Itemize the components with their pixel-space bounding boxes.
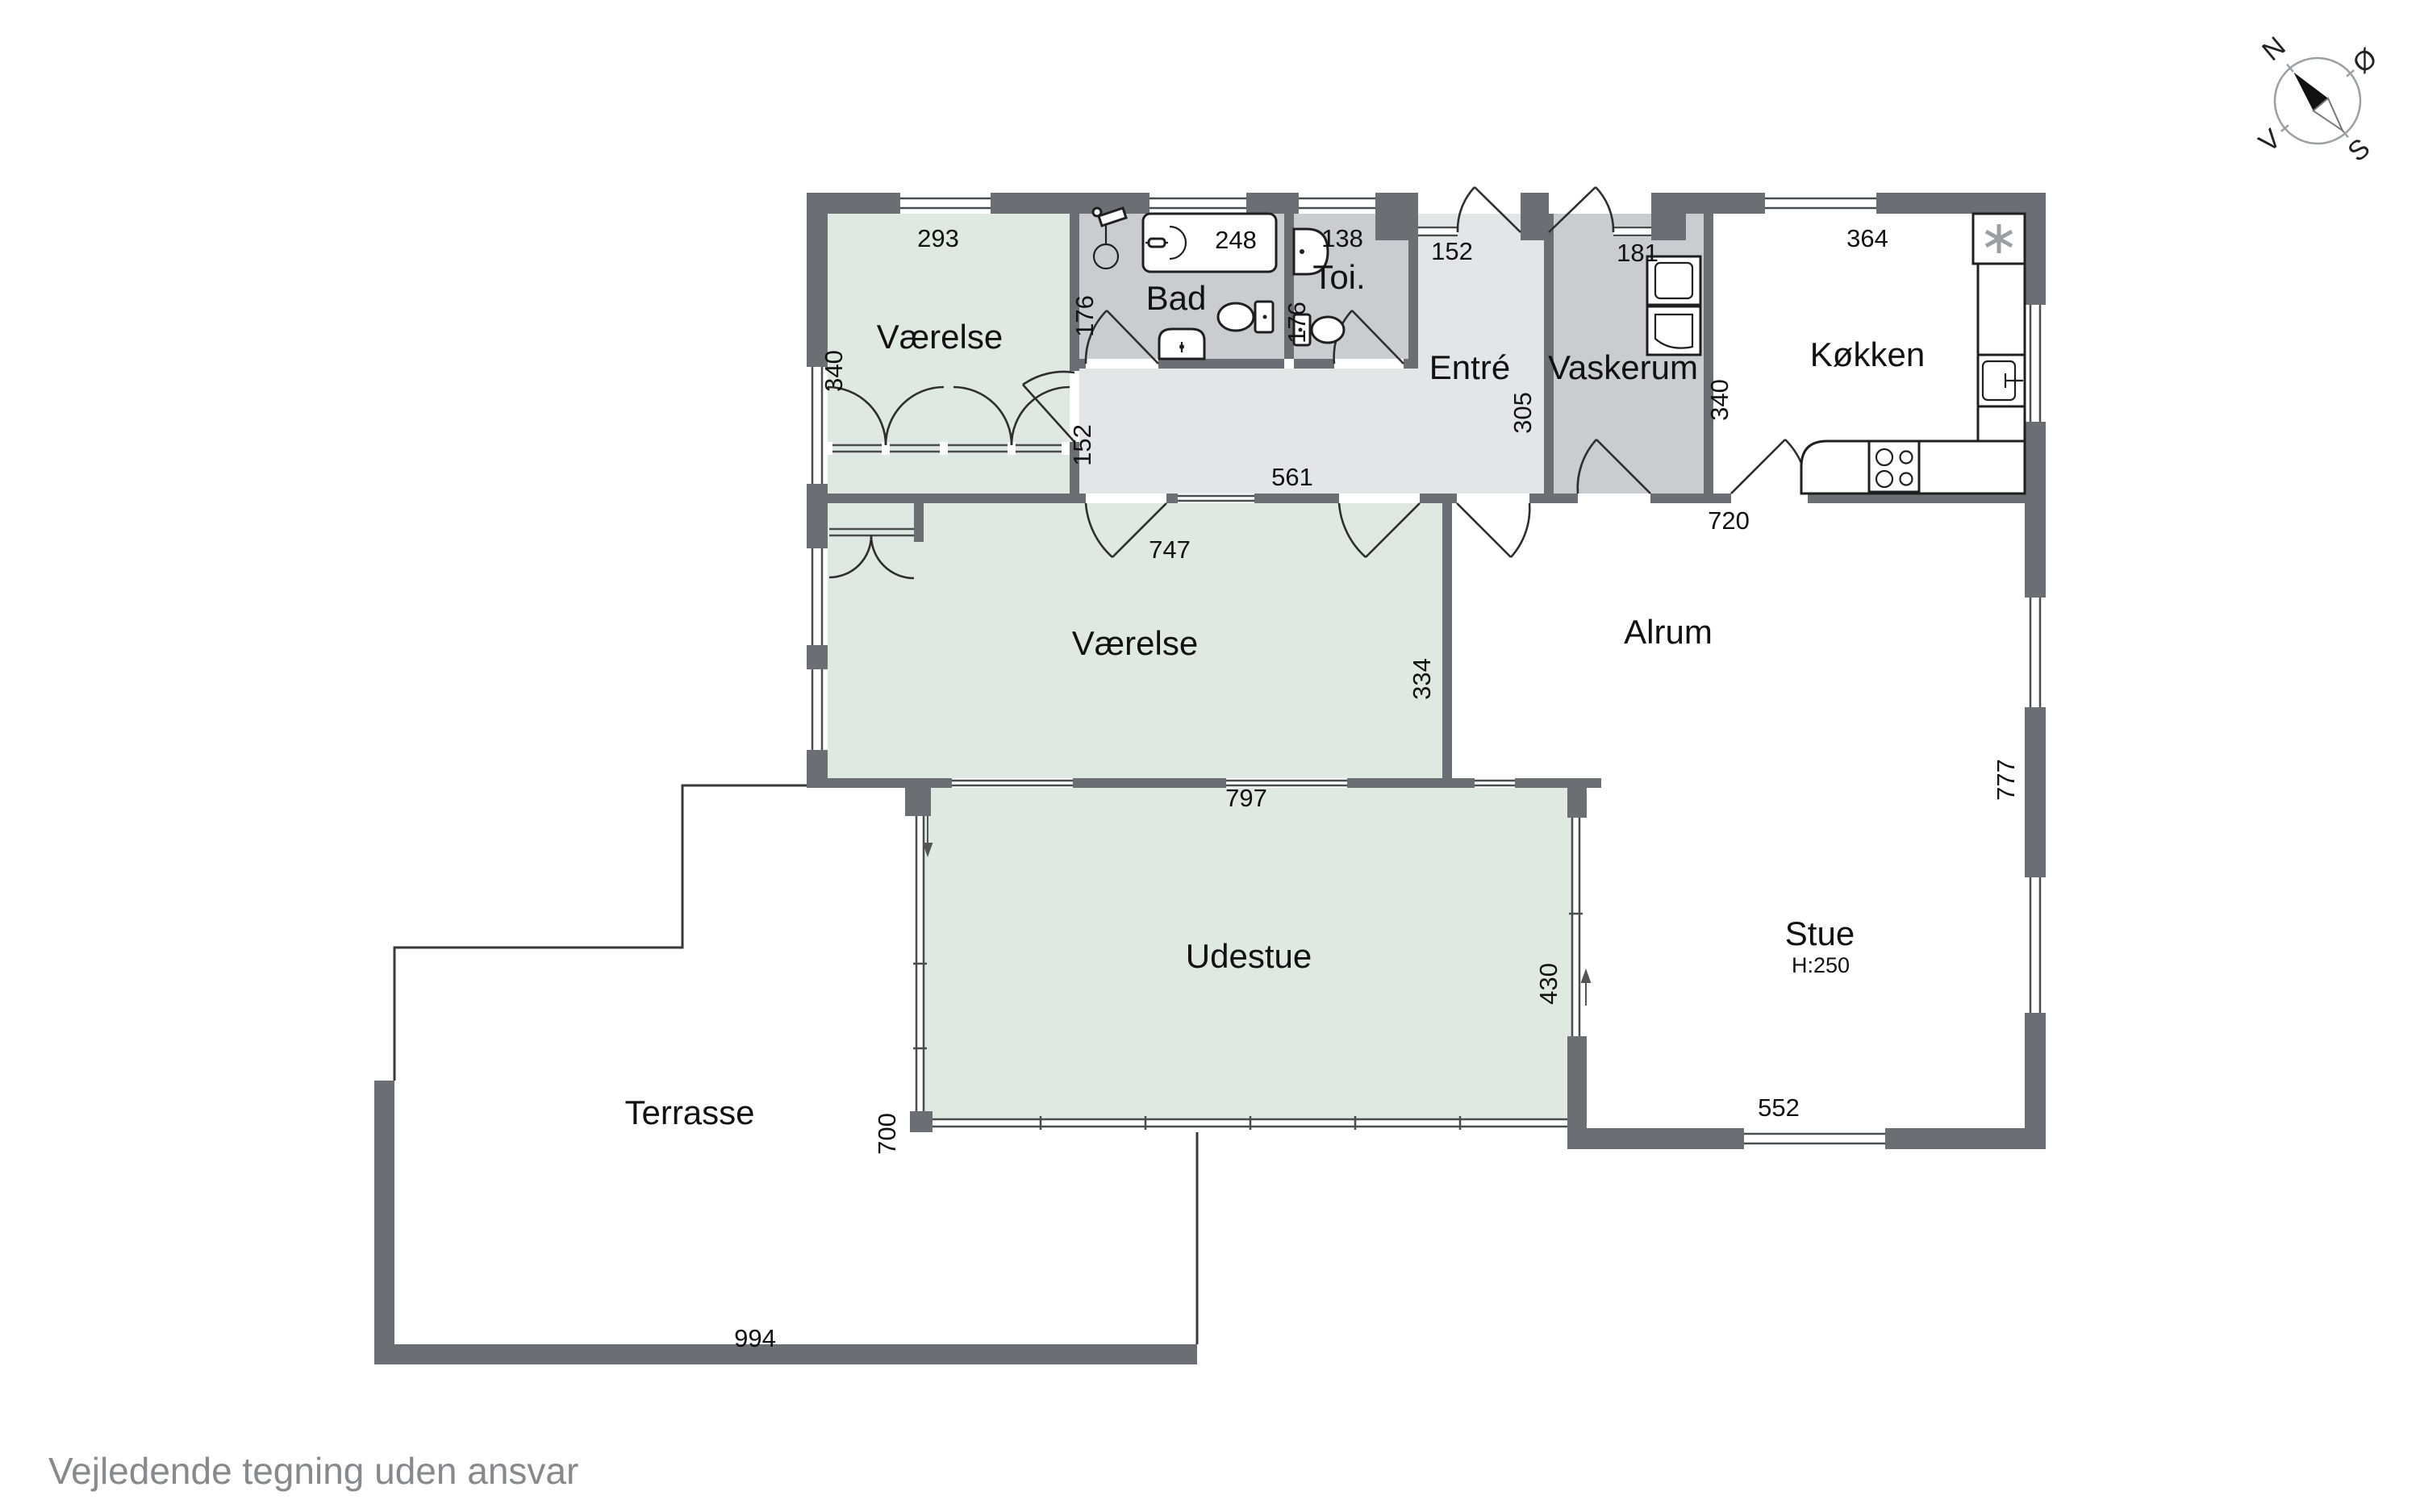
fridge-icon xyxy=(1973,214,2025,264)
compass-rose: N Ø S V xyxy=(2209,0,2420,208)
compass-letter-west: V xyxy=(2253,123,2287,158)
window-bedroom2-south-1 xyxy=(952,779,1073,787)
dim-kitchen-south: 720 xyxy=(1708,506,1750,535)
room-label-entry: Entré xyxy=(1429,348,1510,386)
compass-letter-north: N xyxy=(2256,31,2291,67)
dim-toilet-width: 138 xyxy=(1321,224,1363,252)
window-toilet-north xyxy=(1299,197,1375,210)
sidelight-entry xyxy=(1418,226,1458,237)
dim-hall-width: 152 xyxy=(1068,424,1096,466)
stove-icon xyxy=(1869,441,1919,492)
kitchen-sink-icon xyxy=(1978,355,2025,406)
room-label-sunroom: Udestue xyxy=(1186,937,1312,975)
dim-bathroom-depth: 176 xyxy=(1070,295,1099,337)
window-bedroom1-north xyxy=(900,197,991,210)
room-label-livingroom: Stue xyxy=(1785,914,1855,952)
dim-bedroom2-width: 747 xyxy=(1149,535,1191,564)
dim-sunroom-depth: 430 xyxy=(1534,963,1563,1005)
window-bedroom2-west-1 xyxy=(811,548,824,645)
window-livingroom-south xyxy=(1744,1132,1885,1145)
dim-hall-length: 561 xyxy=(1271,463,1313,491)
toilet-icon-bathroom xyxy=(1218,302,1273,332)
window-kitchen-north xyxy=(1765,197,1876,210)
dim-sunroom-west: 700 xyxy=(873,1113,901,1155)
window-familyroom-east xyxy=(2029,598,2042,707)
laundry-sink-icon xyxy=(1647,306,1700,355)
room-label-bedroom2: Værelse xyxy=(1072,624,1198,662)
dim-bedroom2-depth: 334 xyxy=(1408,658,1436,700)
room-label-terrace: Terrasse xyxy=(624,1093,754,1131)
window-livingroom-east xyxy=(2029,877,2042,1013)
dim-laundry-width: 181 xyxy=(1617,239,1659,267)
window-bedroom2-west-2 xyxy=(811,669,824,750)
dim-east-wall: 777 xyxy=(1992,759,2020,801)
disclaimer-text: Vejledende tegning uden ansvar xyxy=(48,1450,578,1492)
room-label-toilet: Toi. xyxy=(1312,258,1365,296)
dim-livingroom-south: 552 xyxy=(1758,1093,1800,1122)
dim-sunroom-width: 797 xyxy=(1225,784,1267,812)
dim-terrace-width: 994 xyxy=(734,1324,776,1352)
room-label-bedroom1: Værelse xyxy=(877,318,1003,356)
dim-bedroom1-width: 293 xyxy=(917,224,959,252)
window-familyroom-sunroom xyxy=(1475,779,1515,787)
window-hall-bedroom2 xyxy=(1178,494,1254,502)
sidelight-laundry xyxy=(1613,226,1651,237)
ceiling-height-livingroom: H:250 xyxy=(1792,953,1850,977)
room-label-kitchen: Køkken xyxy=(1810,335,1925,373)
floor-plan-drawing: Værelse Bad Toi. Entré Vaskerum Køkken V… xyxy=(0,0,2420,1512)
room-label-laundry: Vaskerum xyxy=(1548,348,1698,386)
dim-bedroom1-depth: 340 xyxy=(820,350,848,392)
floor-plan-page: Værelse Bad Toi. Entré Vaskerum Køkken V… xyxy=(0,0,2420,1512)
dim-kitchen-width: 364 xyxy=(1846,224,1888,252)
window-kitchen-east xyxy=(2029,305,2042,422)
dim-bathtub-width: 248 xyxy=(1215,226,1257,254)
window-bathroom-north xyxy=(1149,197,1246,210)
sink-icon-bathroom xyxy=(1159,329,1204,359)
dim-kitchen-depth: 340 xyxy=(1705,379,1734,421)
room-label-familyroom: Alrum xyxy=(1624,613,1713,651)
room-label-bathroom: Bad xyxy=(1146,279,1207,317)
dim-entry-width: 152 xyxy=(1431,237,1473,265)
dim-entry-depth: 305 xyxy=(1508,392,1537,434)
compass-letter-south: S xyxy=(2343,132,2376,168)
dim-toilet-depth: 176 xyxy=(1283,302,1311,344)
compass-letter-east: Ø xyxy=(2347,42,2384,79)
